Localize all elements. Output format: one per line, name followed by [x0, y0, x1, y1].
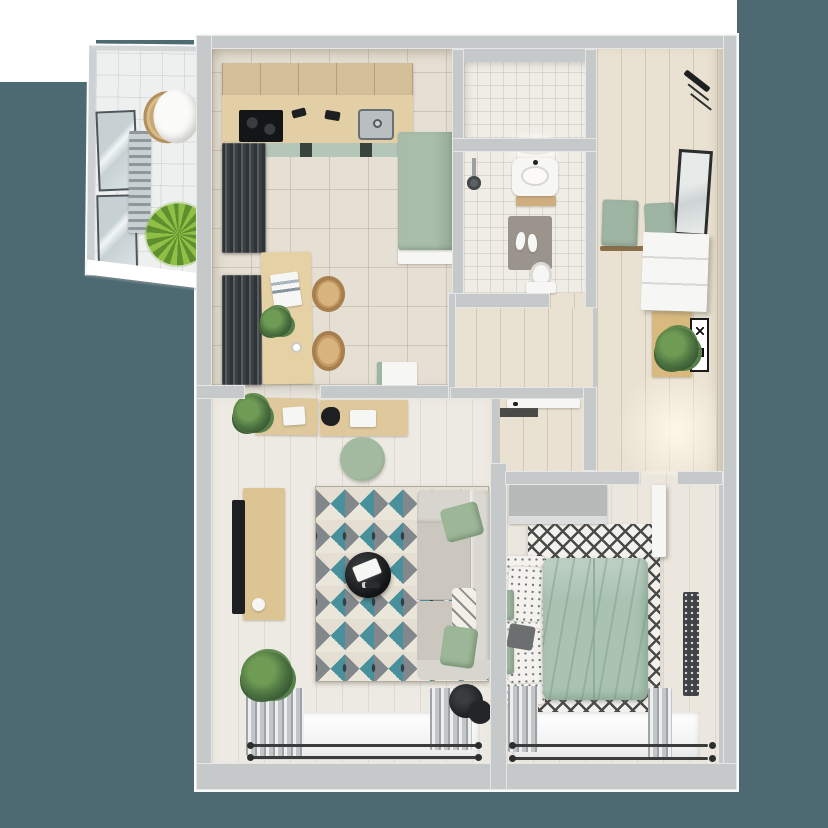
basin-bowl	[521, 166, 549, 186]
bedroom-top-wall	[505, 471, 640, 485]
rod-finial	[709, 755, 716, 762]
side-ball-table	[468, 700, 492, 724]
desk-paper	[350, 410, 376, 427]
apartment-shell	[196, 35, 737, 790]
dining-chair	[312, 276, 345, 312]
bedroom-curtain-right	[648, 688, 672, 758]
rod-finial	[709, 742, 716, 749]
shoe-cabinet	[641, 232, 710, 312]
rod-finial	[509, 755, 516, 762]
desk-plant	[233, 395, 271, 433]
chair-seat	[318, 338, 339, 364]
bedroom-curtain-rod	[512, 744, 708, 747]
toilet-tank	[526, 282, 556, 293]
slipper	[527, 234, 537, 253]
kitchen-living-wall	[320, 385, 452, 399]
cooktop	[239, 110, 283, 142]
living-curtain-rod	[250, 756, 478, 759]
sink-faucet	[373, 119, 382, 128]
magazine	[270, 271, 302, 309]
bedroom-top-wall	[677, 471, 723, 485]
outer-wall-left	[196, 35, 212, 790]
living-bedroom-wall	[490, 463, 507, 790]
background-white-corner	[0, 0, 96, 82]
bathroom-wall-bottom	[452, 293, 550, 308]
kitchen-sink	[358, 109, 394, 140]
dining-table-plant	[260, 307, 292, 337]
balcony-radiator	[128, 131, 151, 233]
bathroom-wall-left	[452, 49, 464, 308]
bathroom-door-gap-floor	[550, 293, 585, 308]
shower-head	[467, 176, 481, 190]
bathroom-wall-divider	[452, 138, 597, 152]
speaker	[252, 598, 265, 611]
bath-shelf	[516, 196, 556, 206]
sofa-pillow-green	[439, 625, 478, 669]
kitchen-white-slab	[398, 248, 453, 264]
door-handle	[513, 402, 518, 406]
kitchen-upper-cabinets	[222, 63, 413, 95]
hall-plant	[655, 327, 699, 371]
rod-finial	[247, 754, 254, 761]
rod-finial	[509, 742, 516, 749]
tv	[232, 500, 245, 614]
entry-hall-light-patch	[616, 365, 716, 475]
rod-finial	[247, 742, 254, 749]
kitchen-hall-wall	[448, 293, 456, 399]
kitchen-dark-panel	[222, 143, 266, 253]
hallway-floor	[452, 308, 593, 387]
outer-wall-top	[196, 35, 737, 49]
bedroom-curtain-rod	[512, 757, 708, 760]
bedroom-dresser	[509, 485, 607, 524]
sofa-pillow-pattern	[452, 588, 476, 630]
kitchen-living-wall	[196, 385, 245, 399]
outer-wall-right	[723, 35, 737, 790]
folded-blanket	[506, 623, 536, 651]
balcony	[87, 45, 203, 274]
entry-door-mat	[500, 408, 538, 417]
dining-chair	[312, 331, 345, 371]
rod-finial	[475, 742, 482, 749]
fridge-tall-unit	[398, 132, 455, 250]
interior-door-leaf	[507, 399, 580, 408]
outer-wall-bottom	[196, 763, 737, 790]
desk-papers	[282, 406, 305, 425]
bedroom-runner-rug	[683, 592, 699, 696]
desk-chair	[340, 437, 385, 481]
kitchen-dark-panel	[222, 275, 262, 385]
rod-finial	[475, 754, 482, 761]
washbasin	[512, 158, 558, 196]
bench-cushion	[601, 199, 639, 246]
bed-duvet	[543, 558, 648, 700]
hall-entry-wall	[583, 387, 597, 471]
living-curtain-rod	[250, 744, 478, 747]
bathroom-wall-right	[585, 49, 597, 308]
living-floor-plant	[241, 651, 293, 701]
leaning-mirror	[673, 149, 713, 237]
floor-plan-render	[0, 0, 828, 828]
slipper	[515, 231, 526, 250]
bedroom-door-leaf	[652, 485, 666, 557]
coffee-cup	[291, 342, 302, 353]
desk-bag	[321, 407, 340, 426]
background-white-top	[0, 0, 737, 40]
shower-room-floor	[464, 62, 585, 138]
chair-seat	[318, 282, 339, 306]
hall-vestibule-wall	[450, 387, 597, 399]
art-x-glyph	[696, 327, 704, 335]
basin-faucet	[533, 160, 538, 165]
table-remote	[362, 582, 380, 588]
bath-mat	[508, 216, 552, 270]
